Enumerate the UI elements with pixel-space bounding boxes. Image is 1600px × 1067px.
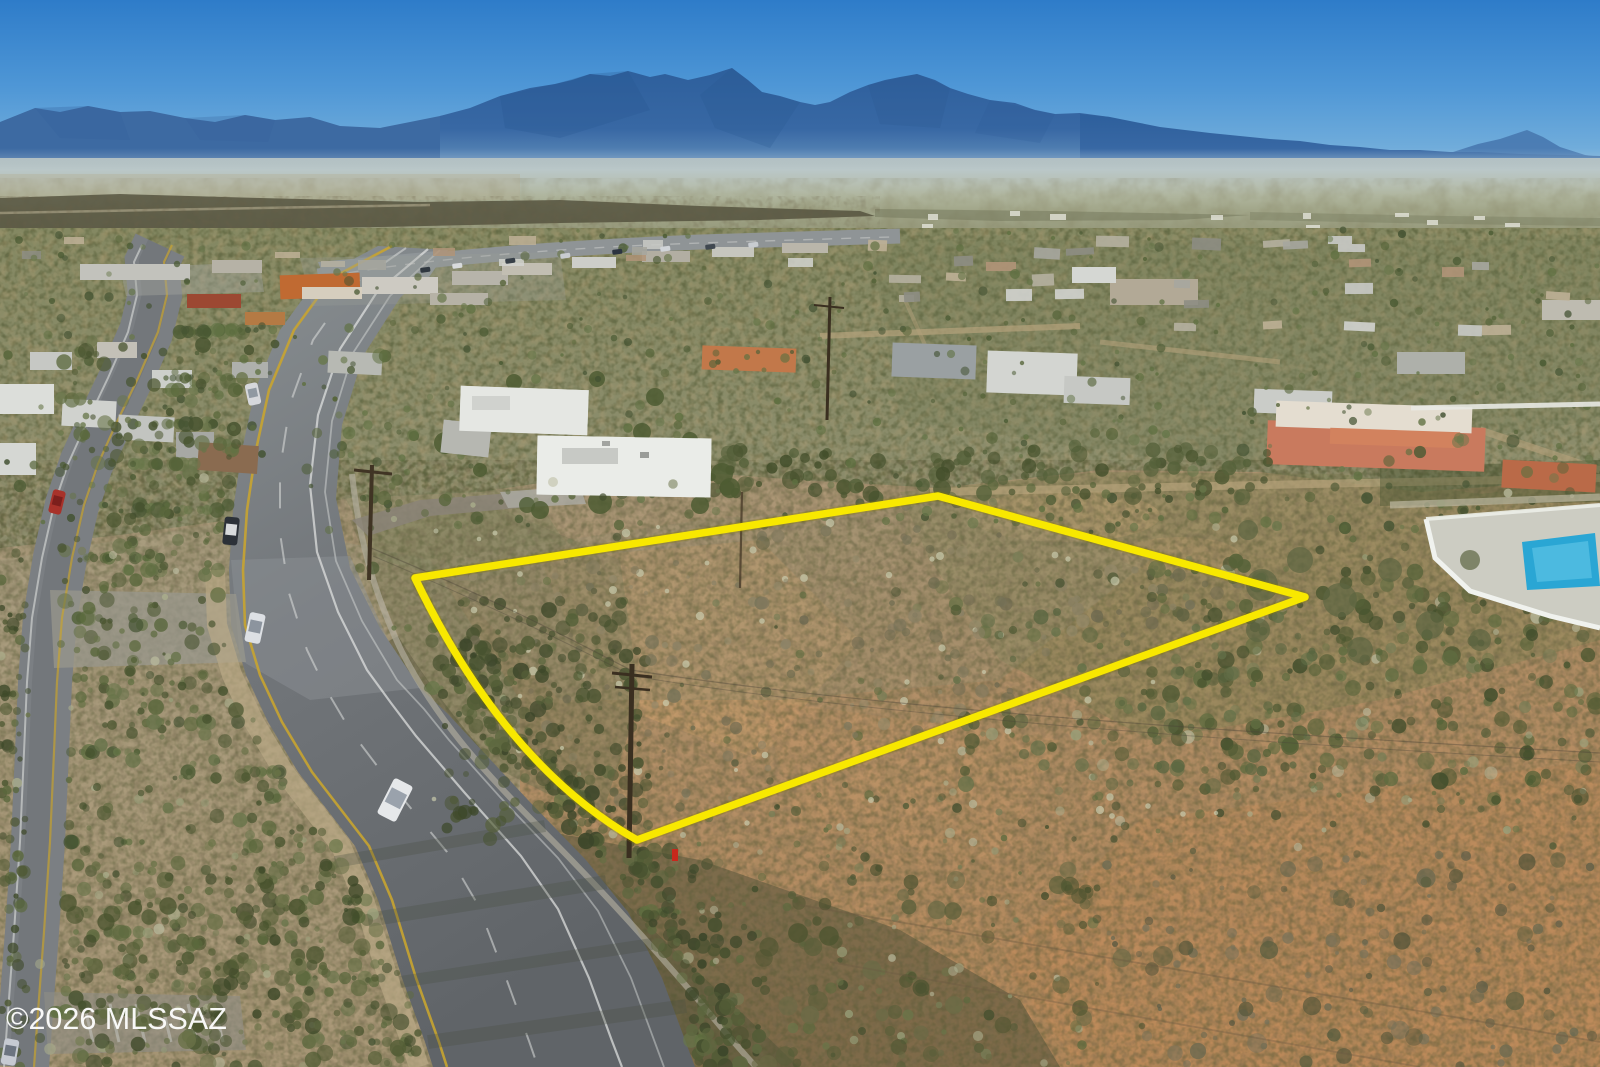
svg-text:©2026 MLSSAZ: ©2026 MLSSAZ — [6, 1002, 227, 1036]
